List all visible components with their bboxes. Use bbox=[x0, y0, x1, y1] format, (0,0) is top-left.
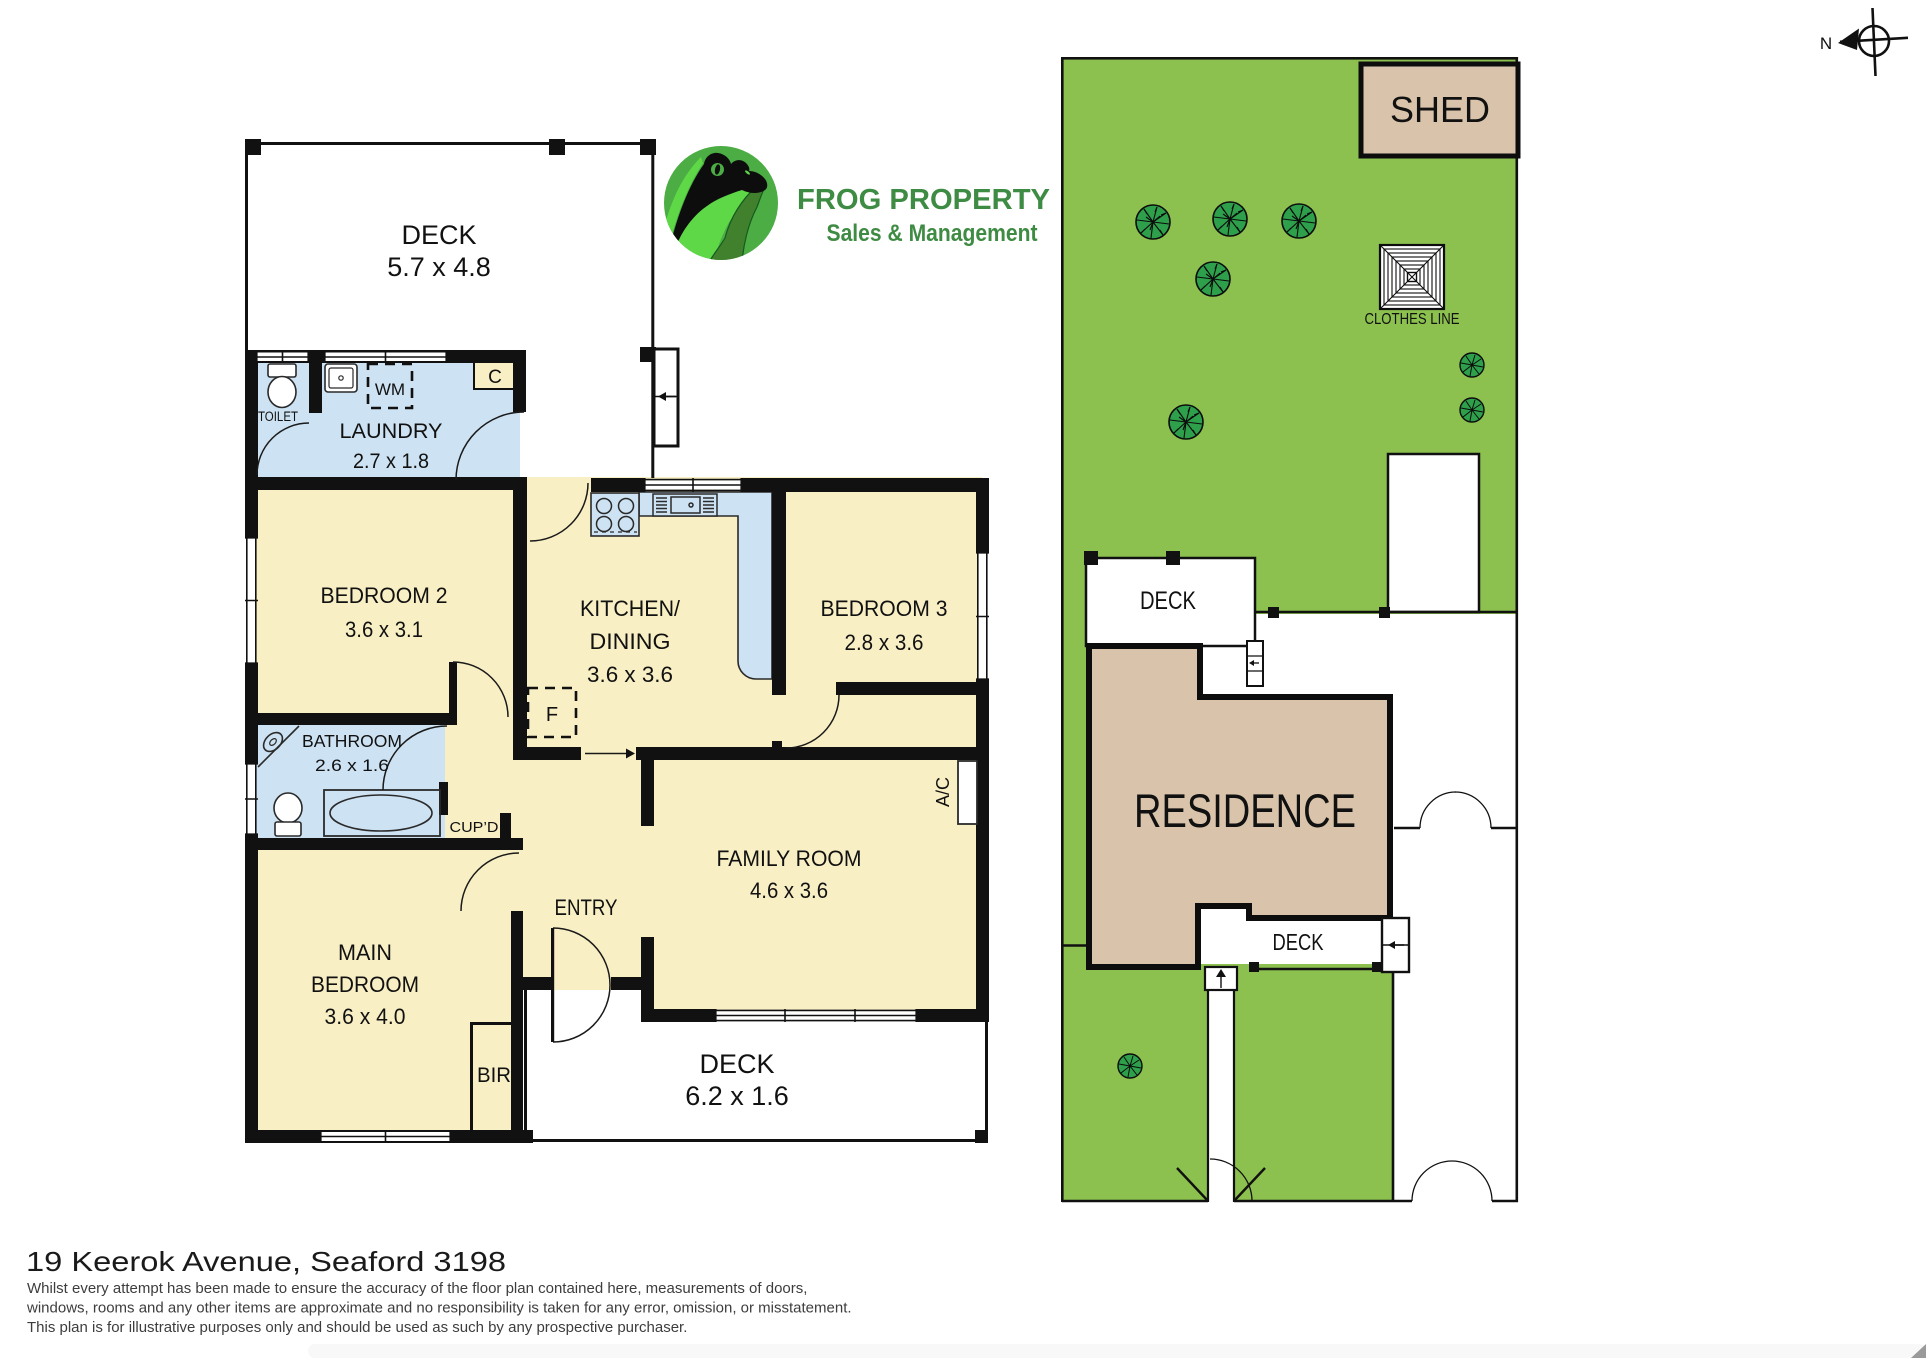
svg-text:3.6 x 3.1: 3.6 x 3.1 bbox=[345, 617, 423, 642]
svg-text:BEDROOM 3: BEDROOM 3 bbox=[821, 596, 948, 621]
svg-text:C: C bbox=[488, 367, 502, 388]
svg-text:DECK: DECK bbox=[401, 220, 476, 250]
svg-text:WM: WM bbox=[375, 380, 405, 399]
svg-text:TOILET: TOILET bbox=[258, 409, 298, 424]
svg-text:RESIDENCE: RESIDENCE bbox=[1134, 784, 1356, 837]
svg-text:2.8 x 3.6: 2.8 x 3.6 bbox=[845, 630, 924, 655]
svg-text:ENTRY: ENTRY bbox=[555, 895, 618, 920]
svg-text:SHED: SHED bbox=[1390, 89, 1490, 130]
svg-text:4.6 x 3.6: 4.6 x 3.6 bbox=[750, 878, 828, 903]
svg-text:BATHROOM: BATHROOM bbox=[302, 731, 402, 751]
svg-text:CLOTHES LINE: CLOTHES LINE bbox=[1365, 311, 1460, 328]
svg-text:CUP’D: CUP’D bbox=[450, 819, 499, 836]
svg-text:5.7 x 4.8: 5.7 x 4.8 bbox=[387, 252, 491, 282]
svg-text:F: F bbox=[546, 704, 558, 726]
svg-text:LAUNDRY: LAUNDRY bbox=[340, 420, 443, 443]
svg-text:A/C: A/C bbox=[933, 777, 953, 807]
svg-text:BEDROOM 2: BEDROOM 2 bbox=[321, 583, 448, 608]
svg-text:3.6 x 4.0: 3.6 x 4.0 bbox=[325, 1004, 406, 1029]
svg-text:BIR: BIR bbox=[477, 1064, 511, 1087]
svg-text:KITCHEN/: KITCHEN/ bbox=[580, 596, 681, 621]
svg-text:DINING: DINING bbox=[590, 629, 671, 654]
svg-text:DECK: DECK bbox=[1140, 587, 1196, 615]
svg-text:3.6 x 3.6: 3.6 x 3.6 bbox=[587, 662, 673, 687]
svg-text:19 Keerok Avenue, Seaford 3198: 19 Keerok Avenue, Seaford 3198 bbox=[26, 1246, 506, 1277]
svg-text:N: N bbox=[1820, 34, 1832, 53]
svg-text:FAMILY ROOM: FAMILY ROOM bbox=[717, 846, 862, 871]
svg-text:2.6 x 1.6: 2.6 x 1.6 bbox=[315, 757, 389, 775]
svg-text:DECK: DECK bbox=[699, 1049, 774, 1079]
svg-text:FROG PROPERTY: FROG PROPERTY bbox=[797, 184, 1050, 216]
svg-text:MAIN: MAIN bbox=[338, 940, 392, 965]
svg-text:DECK: DECK bbox=[1273, 929, 1325, 955]
svg-text:Sales & Management: Sales & Management bbox=[827, 220, 1038, 247]
svg-text:BEDROOM: BEDROOM bbox=[311, 972, 419, 997]
svg-text:6.2 x 1.6: 6.2 x 1.6 bbox=[685, 1081, 789, 1111]
svg-text:Whilst every attempt has been: Whilst every attempt has been made to en… bbox=[27, 1280, 807, 1297]
svg-text:windows, rooms and any other i: windows, rooms and any other items are a… bbox=[26, 1300, 852, 1317]
svg-text:This plan is for illustrative: This plan is for illustrative purposes o… bbox=[27, 1319, 687, 1336]
svg-text:2.7 x 1.8: 2.7 x 1.8 bbox=[353, 450, 429, 473]
